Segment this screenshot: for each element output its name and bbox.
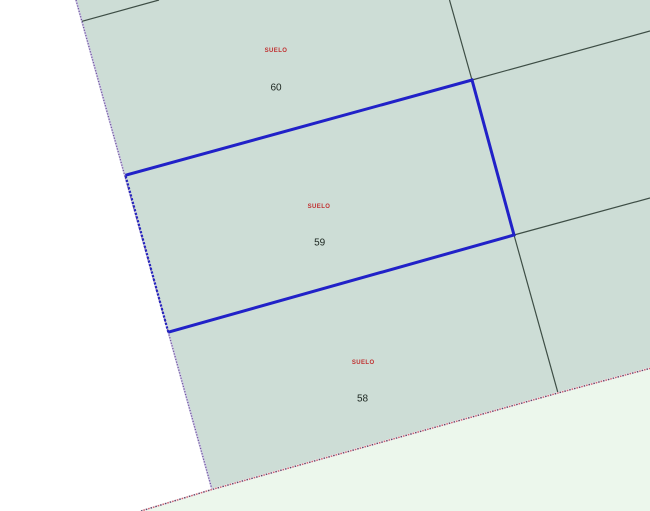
svg-text:58: 58 [357,394,369,405]
svg-text:SUELO: SUELO [265,48,288,54]
svg-text:SUELO: SUELO [352,360,375,366]
svg-text:59: 59 [314,237,326,248]
svg-text:SUELO: SUELO [308,204,331,210]
svg-text:60: 60 [270,83,282,94]
